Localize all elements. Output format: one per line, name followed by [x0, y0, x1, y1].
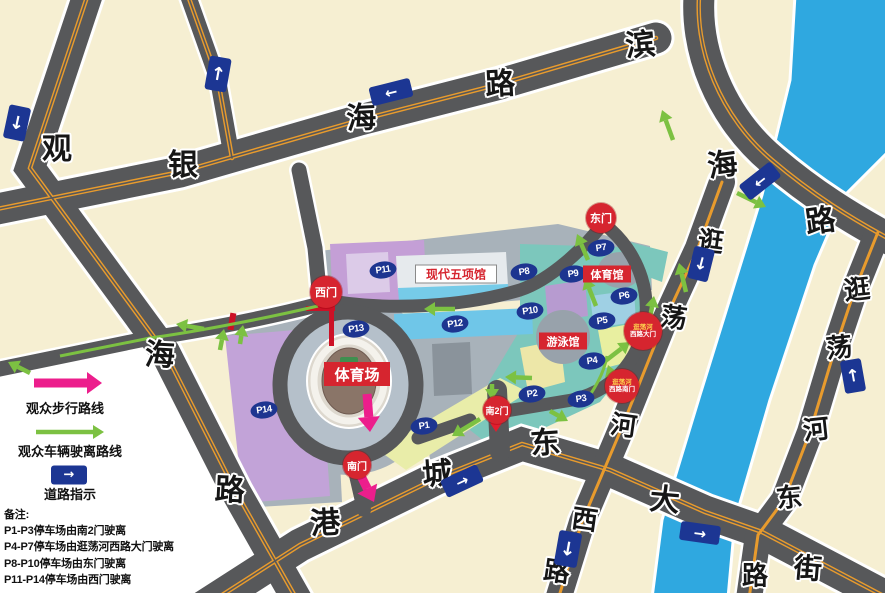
road-name-char: 街 — [792, 546, 823, 588]
venue-label-modern-pentathlon-hall: 现代五项馆 — [415, 265, 497, 284]
road-name-char: 大 — [648, 474, 682, 520]
legend-vehicle-label: 观众车辆驶离路线 — [18, 441, 122, 460]
road-name-char: 东 — [774, 476, 804, 516]
walking-route-arrow — [367, 394, 369, 417]
road-name-char: 观 — [42, 124, 72, 168]
gate-label-line: 逛荡河 — [633, 324, 653, 332]
legend-sign-label: 道路指示 — [44, 484, 96, 503]
road-name-char: 路 — [214, 464, 246, 510]
road-name-char: 海 — [144, 329, 176, 375]
vehicle-route-arrow — [187, 326, 204, 329]
service-building — [432, 342, 472, 396]
map-canvas — [0, 0, 885, 593]
vehicle-route-arrow — [516, 377, 532, 378]
road-name-char: 滨 — [623, 19, 657, 65]
notes-title: 备注: — [4, 507, 234, 523]
gate-south-gate: 南门 — [343, 451, 371, 479]
road-name-char: 路 — [802, 194, 838, 242]
road-name-char: 路 — [742, 556, 768, 593]
road-name-char: 东 — [529, 417, 562, 463]
legend-notes: 备注: P1-P3停车场由南2门驶离 P4-P7停车场由逛荡河西路大门驶离 P8… — [4, 507, 234, 588]
legend-road-sign-icon: → — [51, 466, 87, 485]
note-line: P11-P14停车场由西门驶离 — [4, 572, 234, 588]
gate-label-line: 西路大门 — [630, 331, 656, 339]
road-name-char: 逛 — [842, 268, 872, 308]
venue-label-stadium: 体育场 — [324, 362, 390, 386]
venue-traffic-map: 观众步行路线 观众车辆驶离路线 → 道路指示 备注: P1-P3停车场由南2门驶… — [0, 0, 885, 593]
road-name-char: 海 — [704, 138, 740, 186]
road-name-char: 河 — [801, 408, 831, 448]
gate-label-line: 西路南门 — [609, 386, 635, 394]
venue-label-swimming-hall: 游泳馆 — [539, 333, 587, 350]
road-name-char: 银 — [168, 140, 198, 184]
road-name-char: 荡 — [659, 296, 690, 336]
vehicle-route-arrow — [220, 340, 222, 350]
gate-east-gate: 东门 — [586, 203, 616, 233]
gate-west-gate: 西门 — [310, 276, 342, 308]
legend-walking-label: 观众步行路线 — [26, 398, 104, 417]
vehicle-route-arrow — [240, 336, 241, 344]
note-line: P8-P10停车场由东门驶离 — [4, 556, 234, 572]
note-line: P1-P3停车场由南2门驶离 — [4, 523, 234, 539]
note-line: P4-P7停车场由逛荡河西路大门驶离 — [4, 539, 234, 555]
gate-guangdang-west-road-south-gate: 逛荡河西路南门 — [605, 369, 639, 403]
road-name-char: 路 — [484, 58, 516, 104]
road-name-char: 河 — [609, 404, 640, 444]
venue-label-gymnasium: 体育馆 — [583, 266, 631, 283]
road-name-char: 港 — [309, 497, 342, 543]
gate-label-line: 逛荡河 — [612, 379, 632, 387]
gate-south-gate-2: 南2门 — [483, 396, 511, 424]
gate-guangdang-west-road-main-gate: 逛荡河西路大门 — [624, 312, 662, 350]
